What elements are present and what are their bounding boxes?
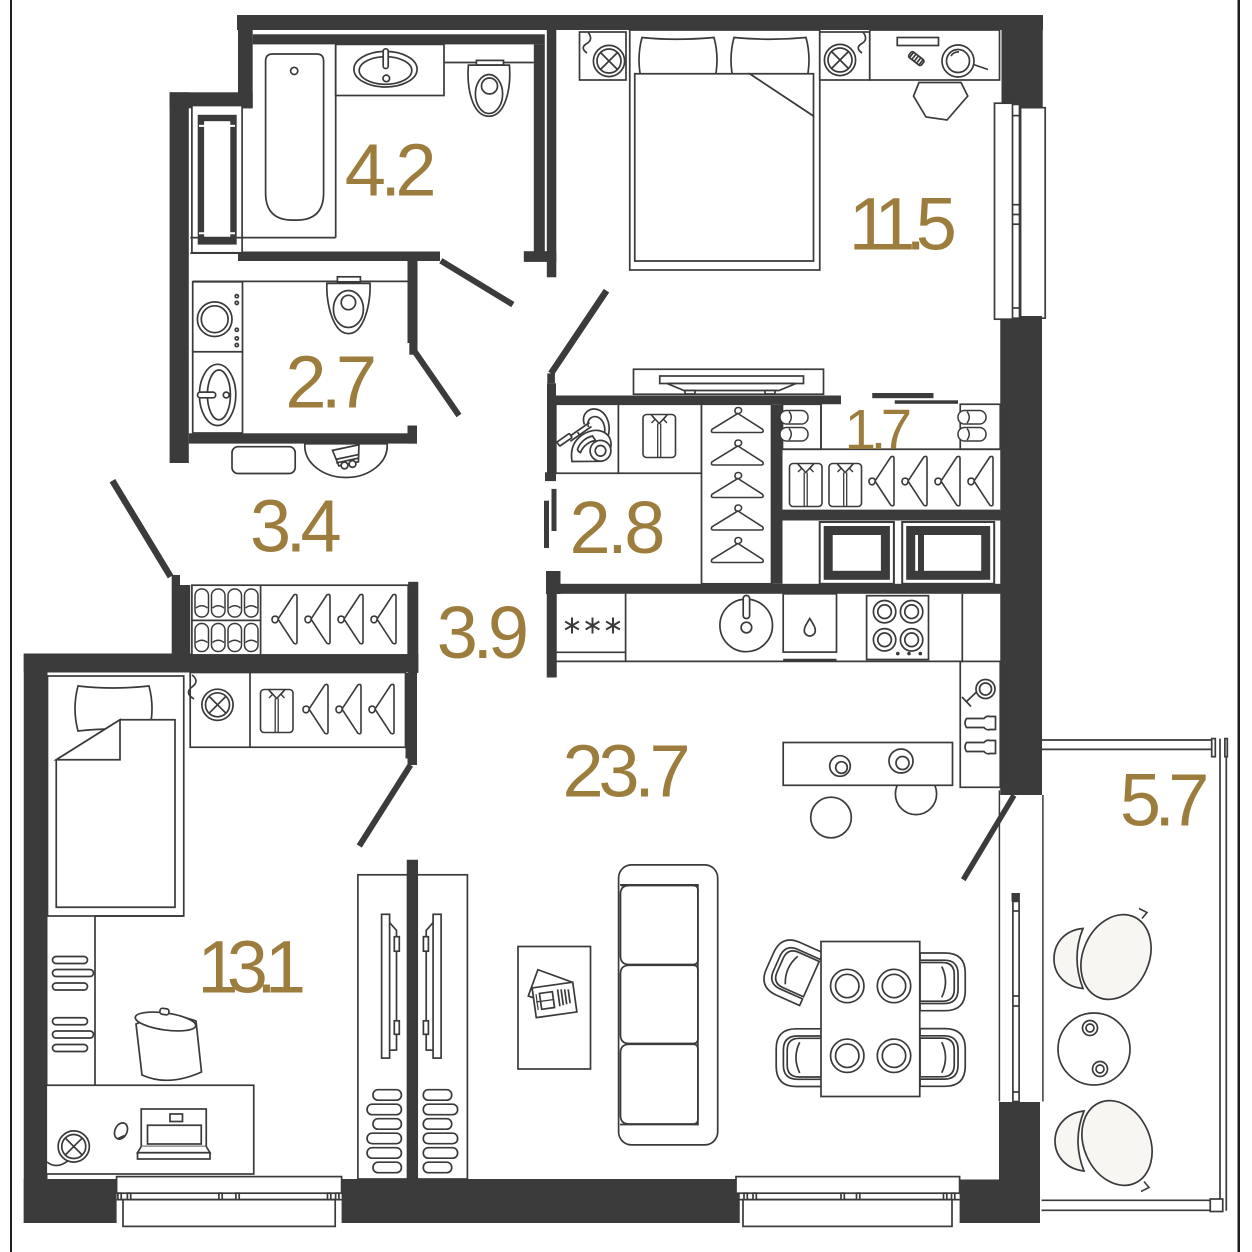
svg-text:5.7: 5.7	[1120, 758, 1206, 841]
svg-text:23.7: 23.7	[562, 729, 687, 812]
svg-text:11.5: 11.5	[849, 182, 955, 265]
svg-text:13.1: 13.1	[197, 925, 302, 1008]
svg-text:3.9: 3.9	[437, 591, 526, 674]
svg-text:3.4: 3.4	[250, 485, 340, 568]
svg-text:1.7: 1.7	[845, 398, 910, 461]
svg-text:4.2: 4.2	[345, 129, 434, 212]
svg-text:2.7: 2.7	[285, 340, 374, 423]
svg-text:2.8: 2.8	[570, 486, 663, 569]
